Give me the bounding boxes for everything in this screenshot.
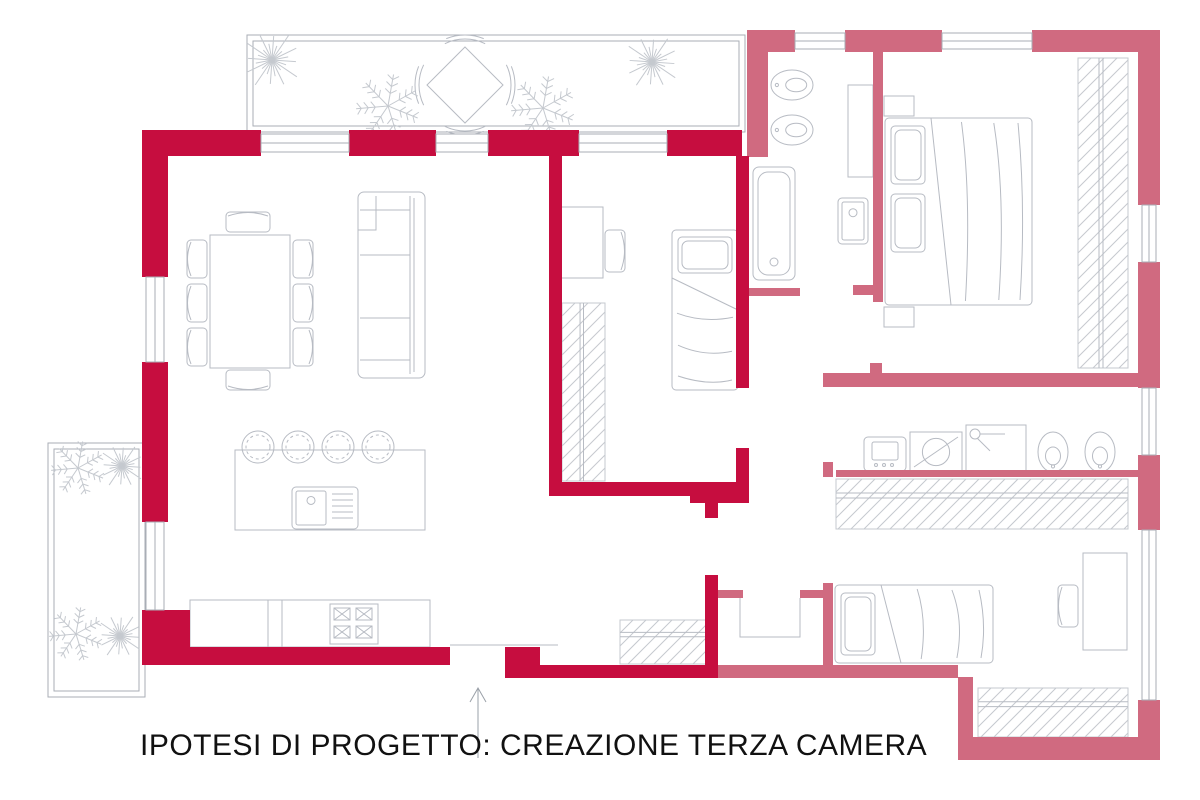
top-wall-seg-1 [142, 130, 261, 156]
plant [87, 457, 88, 463]
plant [93, 454, 94, 460]
top-wall-seg-3 [488, 130, 579, 156]
left-wall-seg-1 [142, 156, 168, 277]
master-partition [873, 52, 883, 302]
niche-stub-west [717, 590, 743, 598]
bath2-door-stub [823, 462, 833, 477]
wing-east-seg-1 [1138, 30, 1160, 205]
plant [96, 617, 97, 623]
floor-plan [0, 0, 1200, 800]
top-wall-seg-4 [667, 130, 742, 156]
hall-wall-lower [705, 575, 718, 678]
new-bedroom-south-corner [690, 482, 749, 503]
background [0, 0, 1200, 800]
bottom-wall-west [142, 647, 450, 665]
floor-plan-page: IPOTESI DI PROGETTO: CREAZIONE TERZA CAM… [0, 0, 1200, 800]
plan-title: IPOTESI DI PROGETTO: CREAZIONE TERZA CAM… [140, 729, 927, 763]
bedroom2-west-wall [823, 583, 833, 677]
hall-wall-upper [705, 495, 718, 518]
bottom-wall-east [505, 665, 717, 678]
bath2-south-wall [836, 470, 1138, 477]
new-bedroom-east-wall-upper [736, 156, 749, 388]
left-wall-seg-2 [142, 362, 168, 522]
wing-top-seg-2 [845, 30, 942, 52]
new-bedroom-west-wall [549, 156, 562, 482]
wing-south-wall [958, 737, 1160, 760]
plant [98, 451, 99, 457]
plant [91, 620, 92, 626]
bedroom2-south-wall [717, 665, 958, 678]
entry-step [505, 647, 540, 665]
wing-east-seg-2 [1138, 262, 1160, 388]
wing-east-seg-3 [1138, 455, 1160, 530]
master-partition-stub [853, 285, 873, 295]
bath1-south-wall [748, 288, 800, 296]
plant [85, 623, 86, 629]
top-wall-seg-2 [349, 130, 436, 156]
wing-south-step [958, 677, 973, 737]
new-bedroom-east-wall-lower [736, 448, 749, 482]
bath2-north-wall [823, 373, 1138, 387]
wing-west-wall [747, 52, 768, 157]
wing-top-seg-1 [747, 30, 795, 52]
